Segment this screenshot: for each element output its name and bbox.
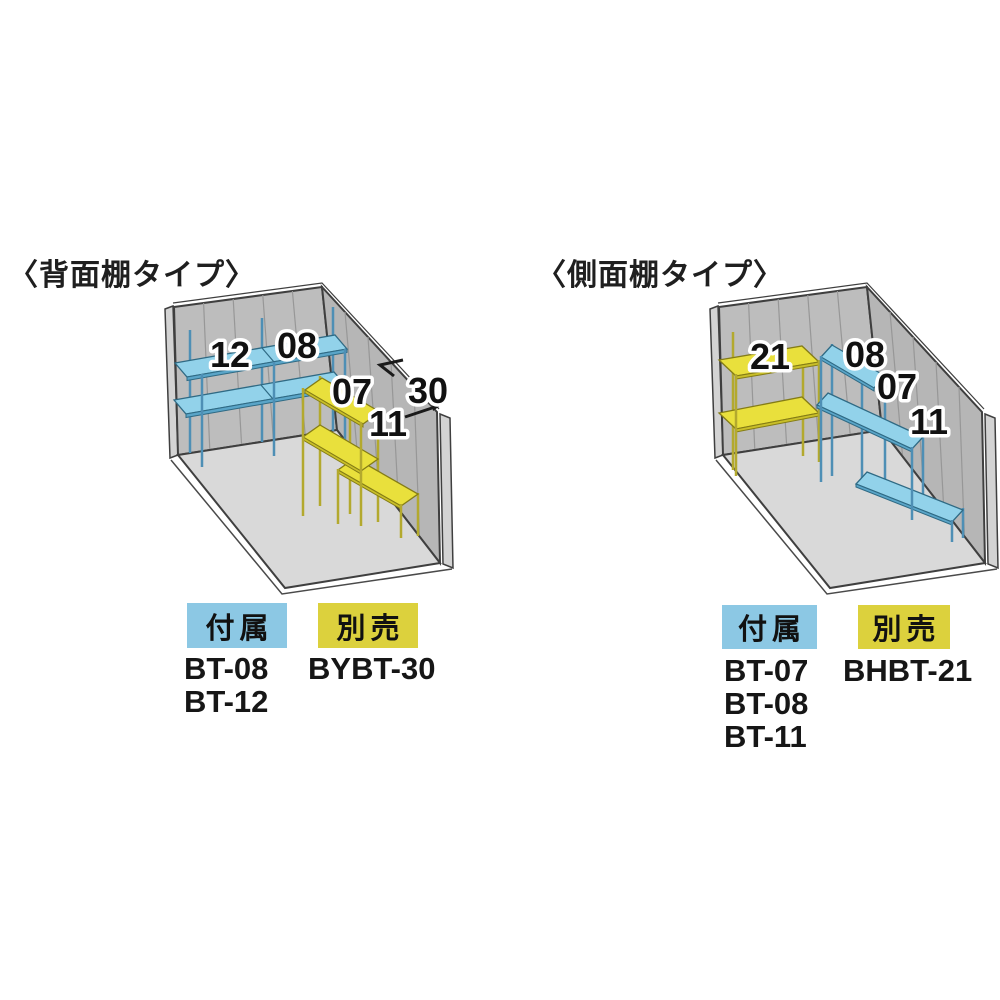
shelf-size-label: 11 bbox=[369, 403, 407, 444]
shelf-size-label: 08 bbox=[277, 325, 317, 366]
model-number: BT-07 bbox=[724, 654, 808, 687]
right-sold-separately-models: BHBT-21 bbox=[843, 654, 972, 687]
right-wall-edge bbox=[985, 414, 998, 568]
left-included-badge: 付属 bbox=[187, 603, 287, 648]
right-included-badge: 付属 bbox=[722, 605, 817, 649]
right-wall-edge bbox=[440, 414, 453, 568]
right-sold-separately-badge: 別売 bbox=[858, 605, 950, 649]
shelf-size-label: 07 bbox=[332, 371, 372, 412]
model-number: BT-08 bbox=[724, 687, 808, 720]
shelf-size-label: 12 bbox=[210, 334, 250, 375]
model-number: BHBT-21 bbox=[843, 654, 972, 687]
left-included-models: BT-08 BT-12 bbox=[184, 652, 268, 718]
shed-shelf-options-diagram: 〈背面棚タイプ〉 〈側面棚タイプ〉 bbox=[0, 0, 1000, 1000]
shed-shell bbox=[710, 283, 998, 594]
model-number: BYBT-30 bbox=[308, 652, 435, 685]
model-number: BT-08 bbox=[184, 652, 268, 685]
shelf-size-label: 11 bbox=[910, 401, 948, 442]
model-number: BT-12 bbox=[184, 685, 268, 718]
model-number: BT-11 bbox=[724, 720, 808, 753]
right-shed-isometric: 21 08 07 11 bbox=[685, 270, 1000, 600]
span-size-label: 30 bbox=[408, 370, 448, 411]
left-sold-separately-badge: 別売 bbox=[318, 603, 418, 648]
left-shed-isometric: 12 08 07 11 bbox=[140, 270, 470, 600]
left-sold-separately-models: BYBT-30 bbox=[308, 652, 435, 685]
right-included-models: BT-07 BT-08 BT-11 bbox=[724, 654, 808, 753]
shelf-size-label: 21 bbox=[750, 336, 790, 377]
